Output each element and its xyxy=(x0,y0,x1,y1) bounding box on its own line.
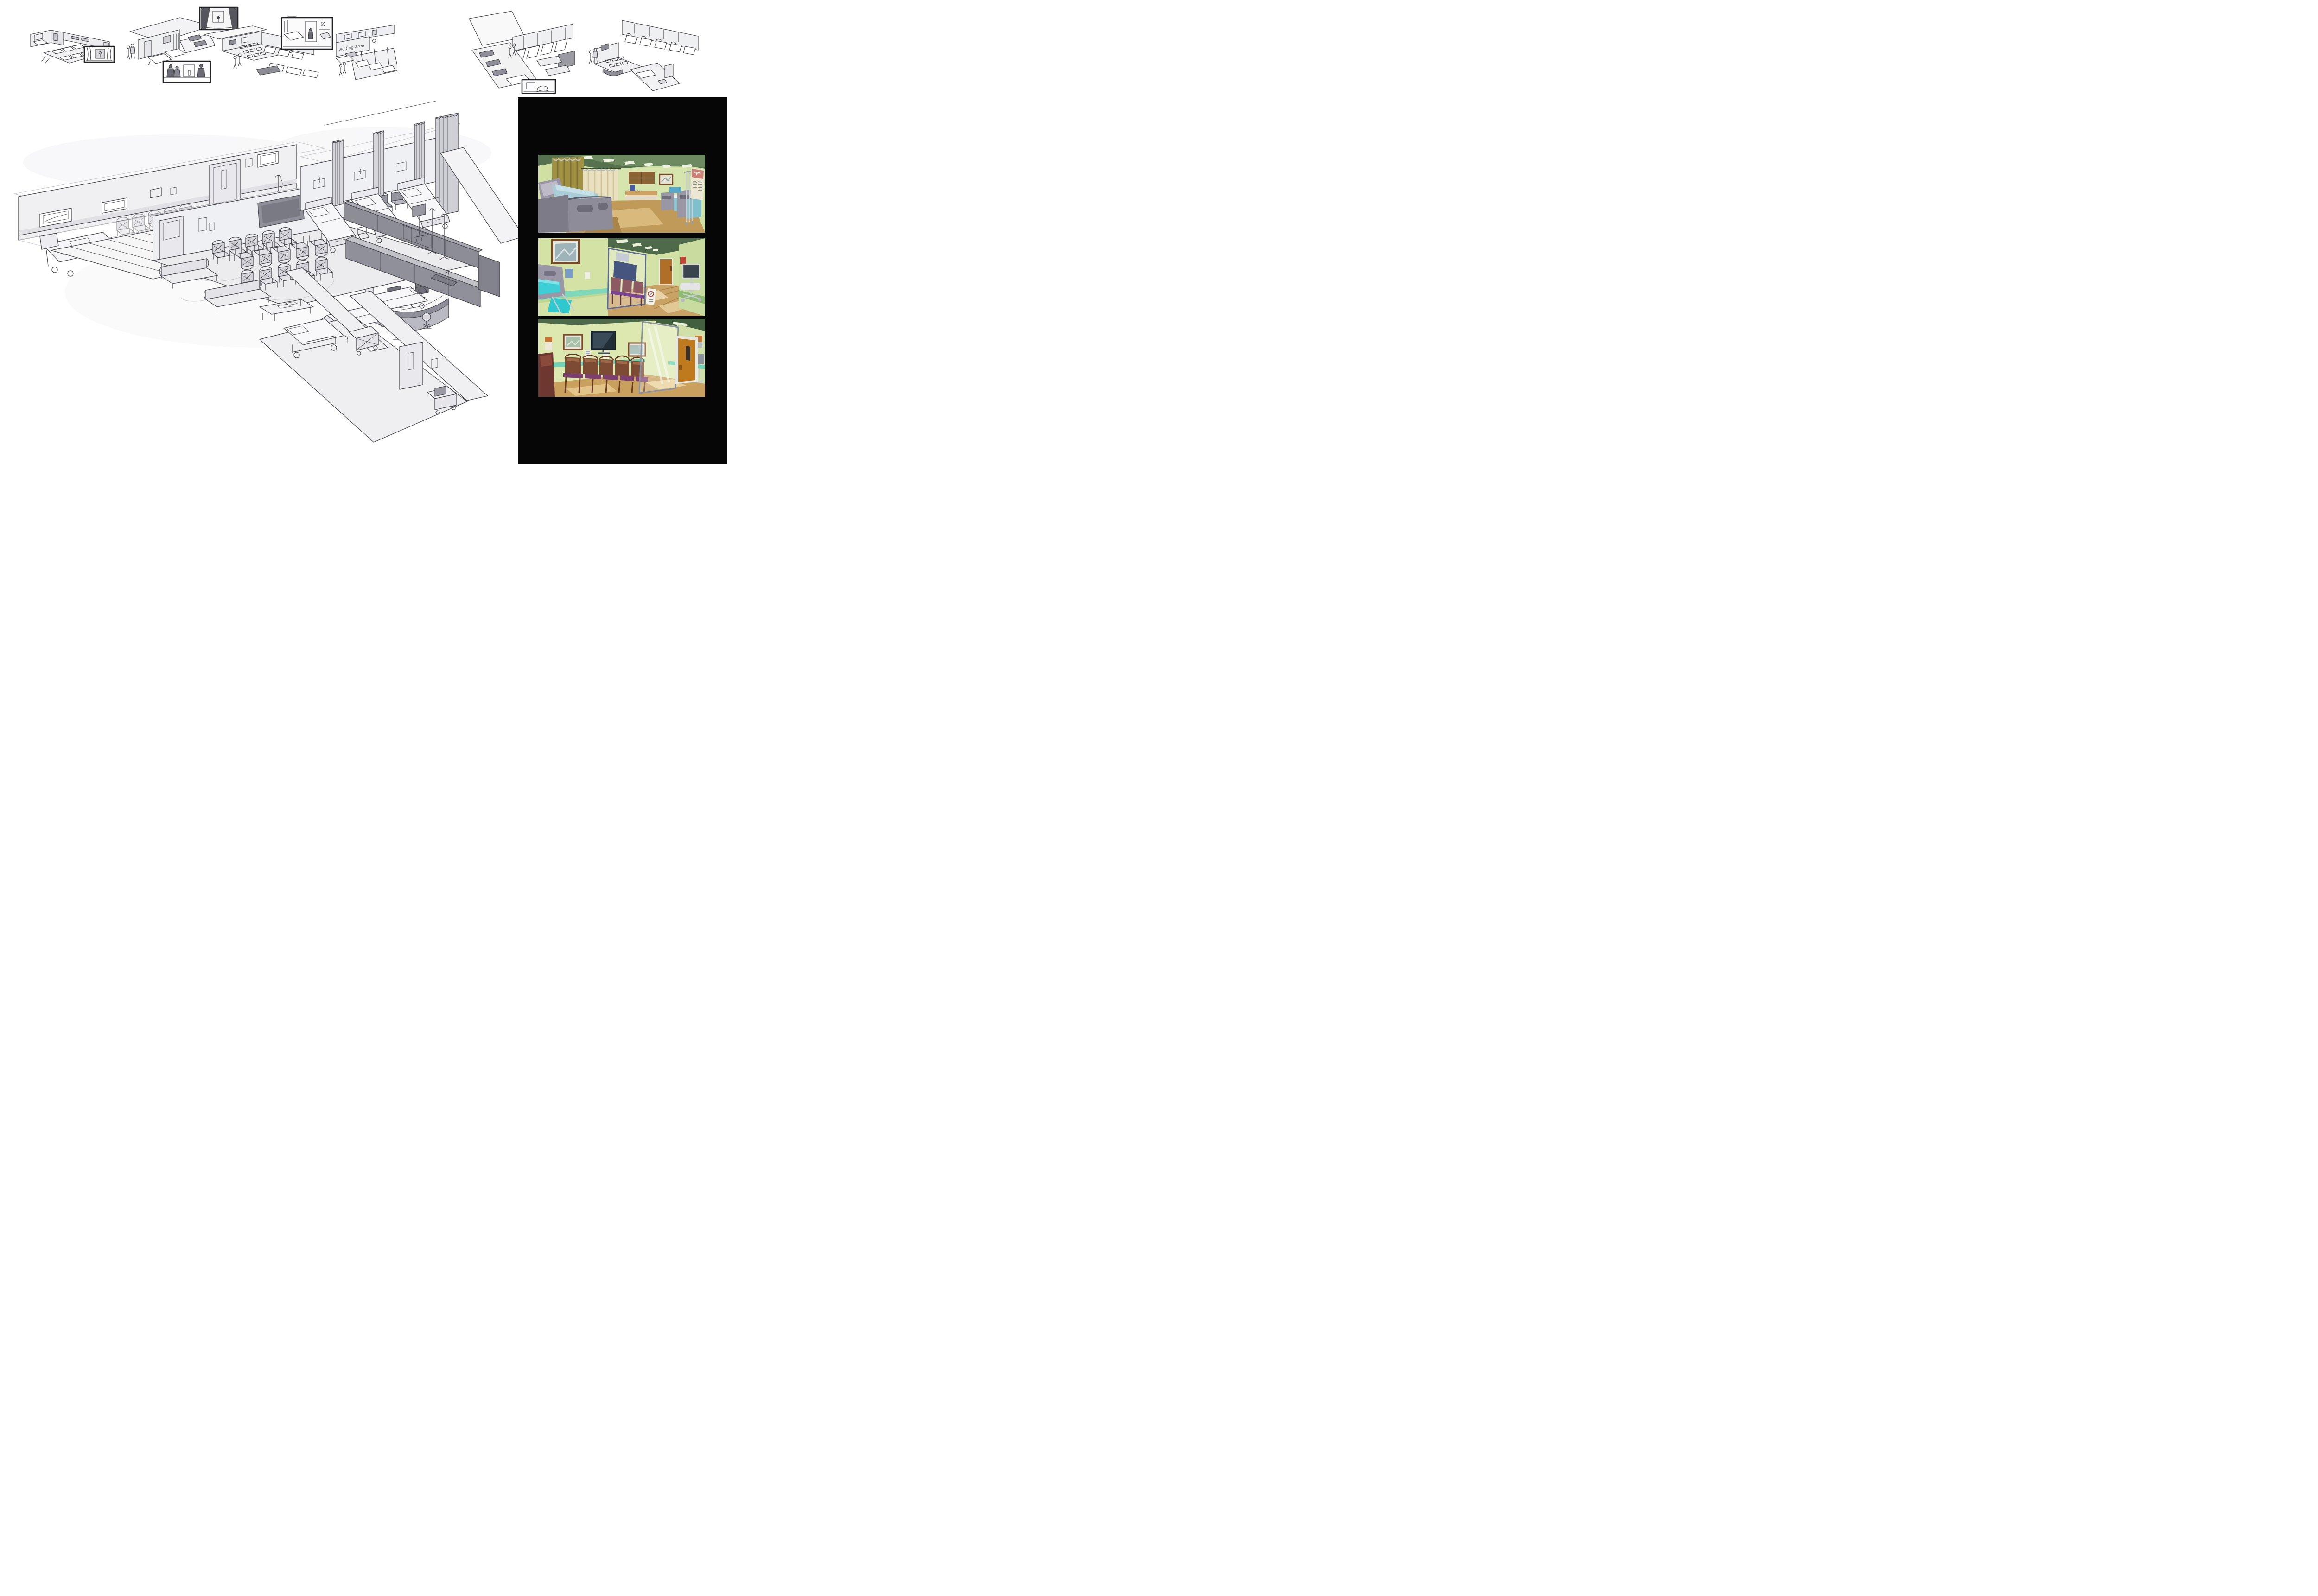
hall-right-wall xyxy=(679,238,705,316)
color-studies-panel xyxy=(518,97,727,464)
thumb1-inset-vignette xyxy=(84,46,114,62)
thumbnail-sketch-6 xyxy=(588,13,701,95)
thumb3-dark-vignette xyxy=(200,7,238,30)
thumbnail-sketch-4: waiting area xyxy=(281,14,397,91)
thumb4-figures xyxy=(339,63,346,75)
thumb5-inset-vignette xyxy=(522,80,555,94)
color-study-ward xyxy=(538,155,705,233)
waiting-room-door xyxy=(159,216,184,262)
color-study-waiting-room xyxy=(538,319,705,397)
wr-tv xyxy=(591,331,615,353)
concept-art-board: waiting area xyxy=(0,0,727,464)
wall-poster xyxy=(690,168,705,200)
thumb6-ward xyxy=(622,20,698,55)
color-study-corridor xyxy=(538,238,705,316)
thumbnail-sketch-5 xyxy=(467,10,576,95)
privacy-curtain-2 xyxy=(374,131,384,197)
thumbnail-sketch-1 xyxy=(27,24,115,82)
thumb2-figures xyxy=(127,44,135,59)
thumb4-inset-vignette xyxy=(281,18,332,49)
hall-end xyxy=(656,255,679,286)
thumb3-reception xyxy=(256,66,280,75)
wr-door xyxy=(675,336,698,384)
thumb1-exam-room xyxy=(31,30,63,47)
wr-glass-partition xyxy=(639,322,678,393)
privacy-curtain-1 xyxy=(333,140,343,206)
wr-sofa-highlight xyxy=(540,355,552,367)
main-hospital-cutaway-sketch xyxy=(0,97,519,464)
